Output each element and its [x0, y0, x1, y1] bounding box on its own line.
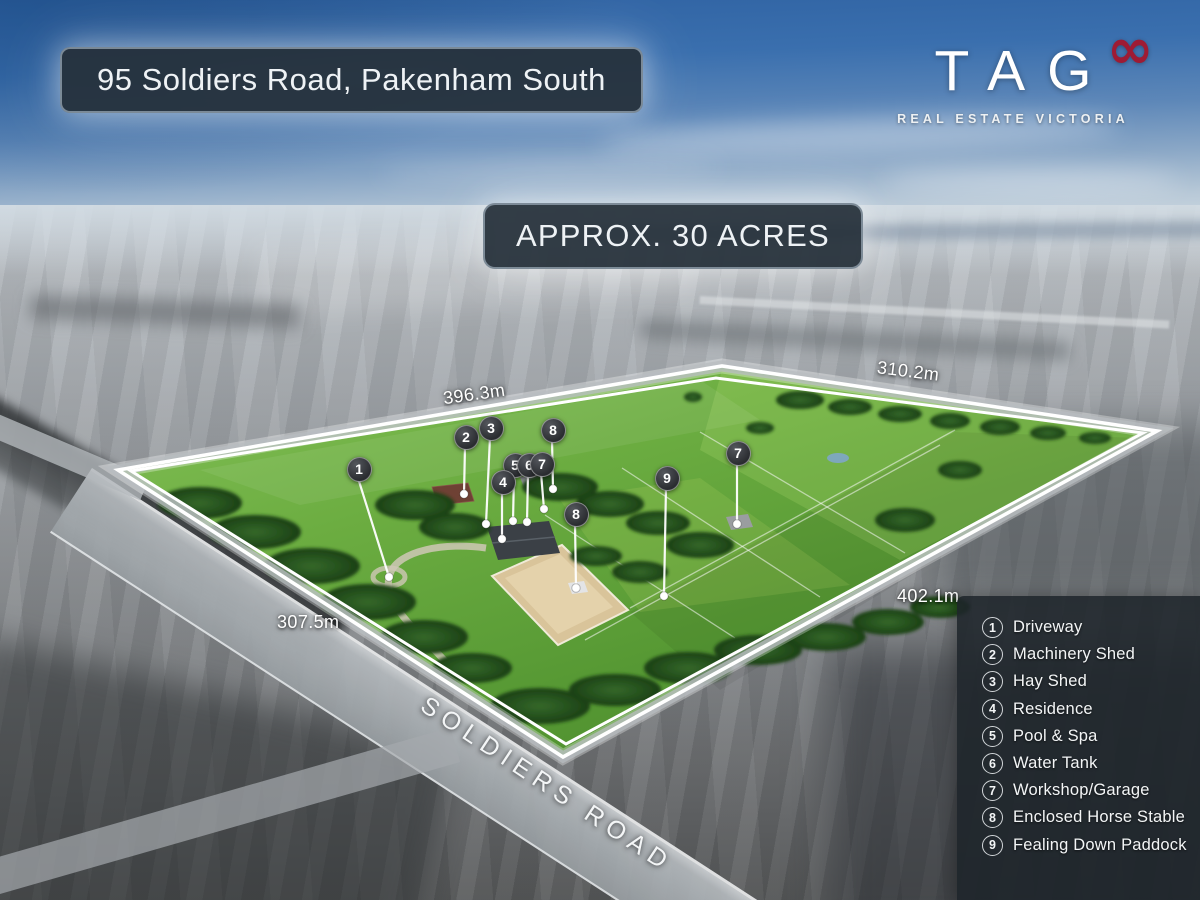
dimension-label: 402.1m [897, 586, 959, 607]
legend-label: Residence [1013, 700, 1093, 719]
infinity-icon: ∞ [1107, 22, 1154, 78]
legend-label: Machinery Shed [1013, 645, 1135, 664]
property-flyer: SOLDIERS ROAD 396.3m310.2m307.5m402.1m 1… [0, 0, 1200, 900]
legend-panel: 1Driveway2Machinery Shed3Hay Shed4Reside… [957, 596, 1200, 900]
map-marker-4: 4 [491, 470, 516, 495]
legend-number-icon: 6 [982, 753, 1003, 774]
legend-item-8: 8Enclosed Horse Stable [982, 804, 1200, 831]
acreage-badge: APPROX. 30 ACRES [483, 203, 863, 269]
legend-item-5: 5Pool & Spa [982, 723, 1200, 750]
legend-number-icon: 1 [982, 617, 1003, 638]
legend-label: Enclosed Horse Stable [1013, 808, 1185, 827]
legend-number-icon: 2 [982, 644, 1003, 665]
legend-label: Driveway [1013, 618, 1082, 637]
brand-name: TAG [935, 39, 1114, 103]
map-marker-2: 2 [454, 425, 479, 450]
map-marker-7: 7 [726, 441, 751, 466]
legend-number-icon: 3 [982, 671, 1003, 692]
legend-number-icon: 8 [982, 807, 1003, 828]
map-marker-8: 8 [564, 502, 589, 527]
legend-item-2: 2Machinery Shed [982, 641, 1200, 668]
brand-logo: TAG ∞ REAL ESTATE VICTORIA [868, 38, 1158, 126]
legend-item-1: 1Driveway [982, 614, 1200, 641]
address-text: 95 Soldiers Road, Pakenham South [97, 62, 606, 97]
legend-item-6: 6Water Tank [982, 750, 1200, 777]
map-marker-9: 9 [655, 466, 680, 491]
legend-number-icon: 9 [982, 835, 1003, 856]
legend-item-9: 9Fealing Down Paddock [982, 832, 1200, 859]
dam [827, 453, 849, 463]
legend-item-4: 4Residence [982, 696, 1200, 723]
legend-label: Water Tank [1013, 754, 1098, 773]
brand-tagline: REAL ESTATE VICTORIA [868, 112, 1158, 126]
address-badge: 95 Soldiers Road, Pakenham South [60, 47, 643, 113]
legend-number-icon: 7 [982, 780, 1003, 801]
legend-label: Workshop/Garage [1013, 781, 1150, 800]
legend-number-icon: 4 [982, 699, 1003, 720]
legend-list: 1Driveway2Machinery Shed3Hay Shed4Reside… [982, 614, 1200, 859]
map-marker-3: 3 [479, 416, 504, 441]
legend-item-7: 7Workshop/Garage [982, 777, 1200, 804]
legend-number-icon: 5 [982, 726, 1003, 747]
legend-item-3: 3Hay Shed [982, 668, 1200, 695]
map-marker-8: 8 [541, 418, 566, 443]
acreage-text: APPROX. 30 ACRES [516, 218, 830, 253]
dimension-label: 307.5m [277, 612, 339, 633]
map-marker-7: 7 [530, 452, 555, 477]
legend-label: Fealing Down Paddock [1013, 836, 1187, 855]
legend-label: Pool & Spa [1013, 727, 1098, 746]
map-marker-1: 1 [347, 457, 372, 482]
legend-label: Hay Shed [1013, 672, 1087, 691]
